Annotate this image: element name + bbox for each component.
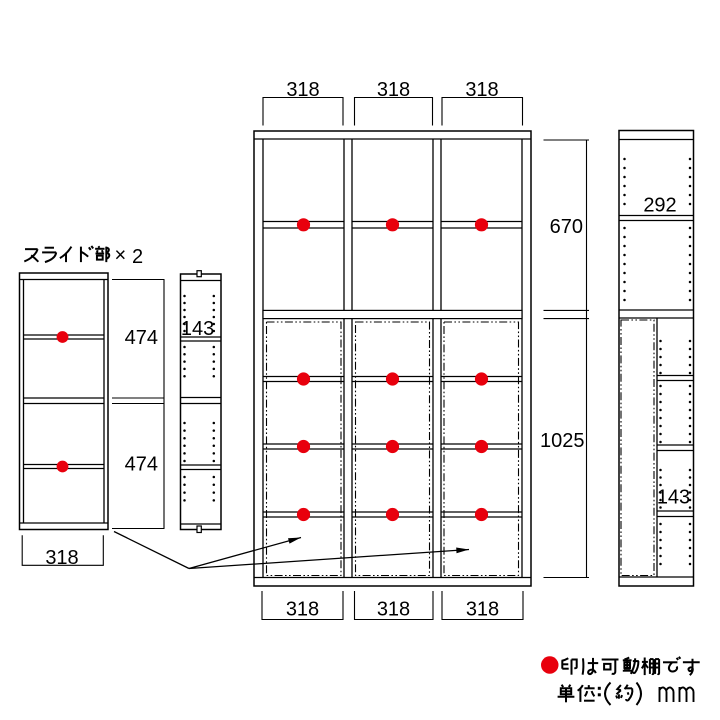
svg-text:2: 2 (132, 246, 143, 268)
svg-text:143: 143 (657, 487, 690, 509)
svg-text:318: 318 (465, 79, 498, 101)
svg-text:318: 318 (286, 599, 319, 621)
svg-text:670: 670 (550, 216, 583, 238)
svg-text:318: 318 (377, 79, 410, 101)
svg-text:1025: 1025 (540, 430, 585, 452)
svg-text:143: 143 (181, 318, 214, 340)
svg-text:318: 318 (466, 599, 499, 621)
svg-text:318: 318 (286, 79, 319, 101)
svg-text:318: 318 (377, 599, 410, 621)
svg-text:292: 292 (643, 195, 676, 217)
svg-text:×: × (115, 245, 127, 267)
svg-text:474: 474 (125, 454, 158, 476)
svg-text:318: 318 (45, 547, 78, 569)
svg-text:474: 474 (125, 327, 158, 349)
